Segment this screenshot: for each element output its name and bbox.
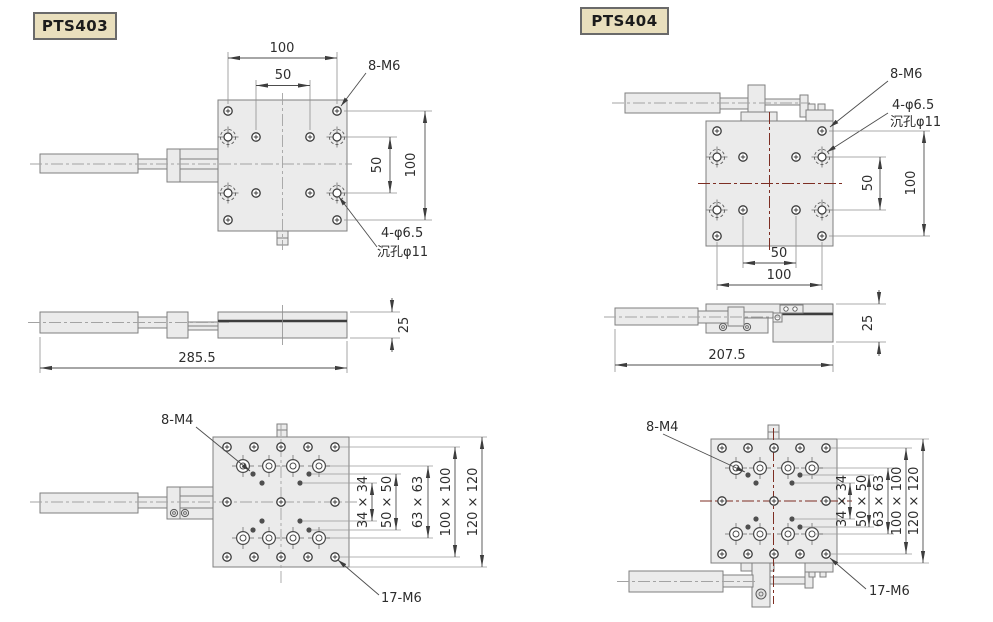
dim-text: 50 [861, 175, 876, 192]
hole-m6 [739, 153, 747, 161]
bracket-screw [181, 509, 188, 516]
hole-m4 [745, 472, 750, 477]
hole-m6 [331, 498, 339, 506]
hole-m4 [789, 480, 794, 485]
counterbore-label: 4-φ6.5 [892, 98, 934, 113]
hole-m6 [792, 206, 800, 214]
dim-text: 63 × 63 [411, 476, 426, 528]
hole-m6 [250, 553, 258, 561]
hole-m6 [224, 216, 232, 224]
micrometer-shaft [720, 98, 748, 109]
hole-m4 [306, 527, 311, 532]
hole-m4 [250, 527, 255, 532]
pts404-top-view: 8-M6 4-φ6.5 沉孔φ11 50 100 [612, 67, 941, 290]
hole-m6 [252, 189, 260, 197]
pts403-top-view: 100 50 8-M6 50 100 [30, 41, 432, 260]
micrometer-shaft [723, 575, 753, 587]
rod-pin [775, 315, 780, 320]
micrometer-bracket [167, 312, 188, 338]
drive-rod [770, 577, 805, 584]
hole-m6 [333, 216, 341, 224]
hole-m4 [297, 518, 302, 523]
hole-m6 [739, 206, 747, 214]
dim-text: 100 [767, 268, 792, 283]
pts403-bottom-view: 8-M4 34 × 34 50 × 50 63 × 63 [30, 413, 487, 606]
hole-m6 [796, 550, 804, 558]
dim-text: 63 × 63 [872, 475, 887, 527]
label-8-m6: 8-M6 [341, 59, 400, 106]
dim-text: 285.5 [178, 351, 215, 366]
hole-m6 [718, 550, 726, 558]
hole-m6 [250, 443, 258, 451]
micrometer-bracket [167, 149, 218, 182]
hole-m6 [822, 550, 830, 558]
stop-foot [805, 563, 833, 572]
hole-m4 [753, 516, 758, 521]
hole-m6 [277, 553, 285, 561]
hole-m6 [792, 153, 800, 161]
dim-text: 100 [904, 171, 919, 196]
dim-height: 25 [350, 298, 412, 352]
thread-label: 8-M4 [161, 413, 193, 428]
dim-text: 50 [275, 68, 292, 83]
dim-text: 100 × 100 [439, 468, 454, 537]
hole-m6 [252, 133, 260, 141]
hole-m4 [789, 516, 794, 521]
pts403-side-view: 285.5 25 [28, 298, 412, 373]
dim-text: 120 × 120 [907, 467, 922, 536]
dim-text: 50 × 50 [855, 475, 870, 527]
micrometer-barrel [40, 154, 138, 173]
hole-m6 [331, 443, 339, 451]
hole-m6 [306, 189, 314, 197]
hole-m6 [277, 443, 285, 451]
counterbore-label2: 沉孔φ11 [377, 245, 428, 260]
hole-m6 [796, 444, 804, 452]
dim-text: 50 [370, 157, 385, 174]
dim-text: 34 × 34 [356, 476, 371, 528]
hole-m6 [770, 497, 778, 505]
micrometer-barrel [40, 493, 138, 513]
hole-m4 [753, 480, 758, 485]
hole-m6 [818, 232, 826, 240]
micrometer-bracket [752, 563, 770, 607]
hole-m4 [297, 480, 302, 485]
bracket-screw [756, 589, 766, 599]
hole-m6 [223, 553, 231, 561]
dim-length: 285.5 [40, 337, 347, 373]
hole-m6 [304, 443, 312, 451]
micrometer-barrel [615, 308, 698, 325]
hole-m4 [259, 518, 264, 523]
label-counterbore: 4-φ6.5 沉孔φ11 [339, 197, 428, 260]
dim-text: 34 × 34 [835, 475, 850, 527]
hole-m4 [259, 480, 264, 485]
dim-text: 100 × 100 [890, 467, 905, 536]
hole-m6 [718, 497, 726, 505]
dim-text: 25 [861, 315, 876, 332]
thread-label: 17-M6 [869, 584, 910, 599]
thread-label: 8-M6 [368, 59, 400, 74]
dim-text: 120 × 120 [466, 468, 481, 537]
hole-m4 [745, 524, 750, 529]
hole-m4 [797, 524, 802, 529]
pts404-side-view: 207.5 25 [604, 290, 886, 372]
micrometer-shaft [138, 497, 167, 508]
bracket-base [741, 112, 777, 121]
pts404-bottom-view: 8-M4 34 × 34 50 × 50 63 × 63 [617, 420, 929, 607]
dim-right-inner: 50 [344, 137, 397, 193]
hole-m6 [822, 444, 830, 452]
technical-drawing-page: PTS403 PTS404 [0, 0, 993, 622]
dim-text: 50 × 50 [380, 476, 395, 528]
dim-text: 25 [397, 317, 412, 334]
dim-text: 100 [404, 153, 419, 178]
label-17-m6: 17-M6 [830, 558, 910, 599]
hole-m6 [744, 550, 752, 558]
hole-m6 [277, 498, 285, 506]
micrometer-bracket [748, 85, 765, 113]
hole-m6 [770, 550, 778, 558]
hole-m6 [306, 133, 314, 141]
hole-m6 [744, 444, 752, 452]
dim-right-inner: 50 [829, 157, 886, 210]
hole-m6 [713, 127, 721, 135]
hole-m4 [250, 471, 255, 476]
hole-m6 [822, 497, 830, 505]
drawing-canvas: 100 50 8-M6 50 100 [0, 0, 993, 622]
hole-m6 [333, 107, 341, 115]
hole-m6 [718, 444, 726, 452]
thread-label: 8-M4 [646, 420, 678, 435]
dim-text: 207.5 [708, 348, 745, 363]
drive-rod [765, 99, 800, 105]
hole-m6 [713, 232, 721, 240]
dim-right-outer: 100 [344, 111, 432, 220]
hole-m6 [224, 107, 232, 115]
hole-m6 [331, 553, 339, 561]
dim-text: 100 [270, 41, 295, 56]
hole-m6 [304, 553, 312, 561]
thread-label: 17-M6 [381, 591, 422, 606]
stop-foot [806, 110, 833, 121]
dim-text: 50 [771, 246, 788, 261]
counterbore-label2: 沉孔φ11 [890, 115, 941, 130]
hole-m6 [818, 127, 826, 135]
bracket-screw [719, 323, 726, 330]
counterbore-label: 4-φ6.5 [381, 226, 423, 241]
hole-m6 [223, 498, 231, 506]
bracket-screw [170, 509, 177, 516]
dim-right-outer: 100 [829, 131, 930, 236]
hole-m4 [797, 472, 802, 477]
dim-height: 25 [836, 290, 886, 356]
hole-m6 [770, 444, 778, 452]
thread-label: 8-M6 [890, 67, 922, 82]
hole-m4 [306, 471, 311, 476]
micrometer-bracket [728, 307, 744, 326]
